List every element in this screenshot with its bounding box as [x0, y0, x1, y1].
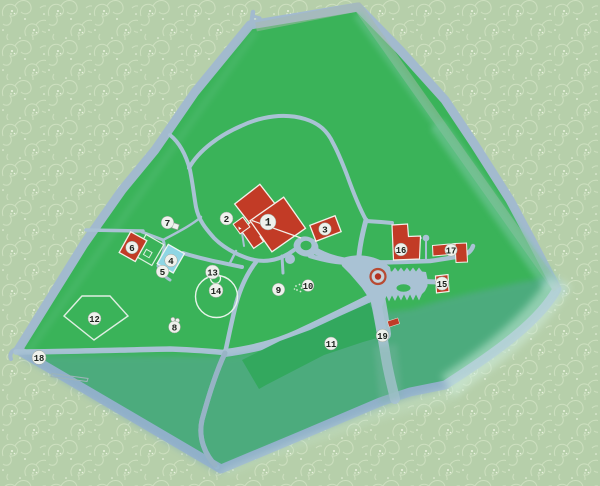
svg-text:7: 7 — [165, 218, 171, 229]
svg-text:6: 6 — [129, 243, 135, 254]
svg-text:19: 19 — [377, 332, 388, 342]
svg-text:1: 1 — [265, 217, 272, 229]
svg-text:18: 18 — [34, 354, 45, 364]
svg-text:9: 9 — [276, 285, 282, 296]
svg-text:8: 8 — [172, 322, 178, 333]
svg-text:11: 11 — [326, 340, 337, 350]
svg-text:14: 14 — [211, 287, 222, 297]
svg-text:15: 15 — [437, 280, 448, 290]
svg-text:10: 10 — [303, 282, 314, 292]
svg-text:12: 12 — [89, 315, 100, 325]
svg-text:17: 17 — [446, 246, 457, 256]
svg-text:2: 2 — [224, 214, 230, 225]
svg-text:3: 3 — [322, 224, 328, 235]
svg-text:4: 4 — [168, 256, 174, 267]
svg-text:5: 5 — [160, 267, 166, 278]
svg-text:16: 16 — [396, 246, 407, 256]
svg-text:13: 13 — [207, 268, 218, 278]
